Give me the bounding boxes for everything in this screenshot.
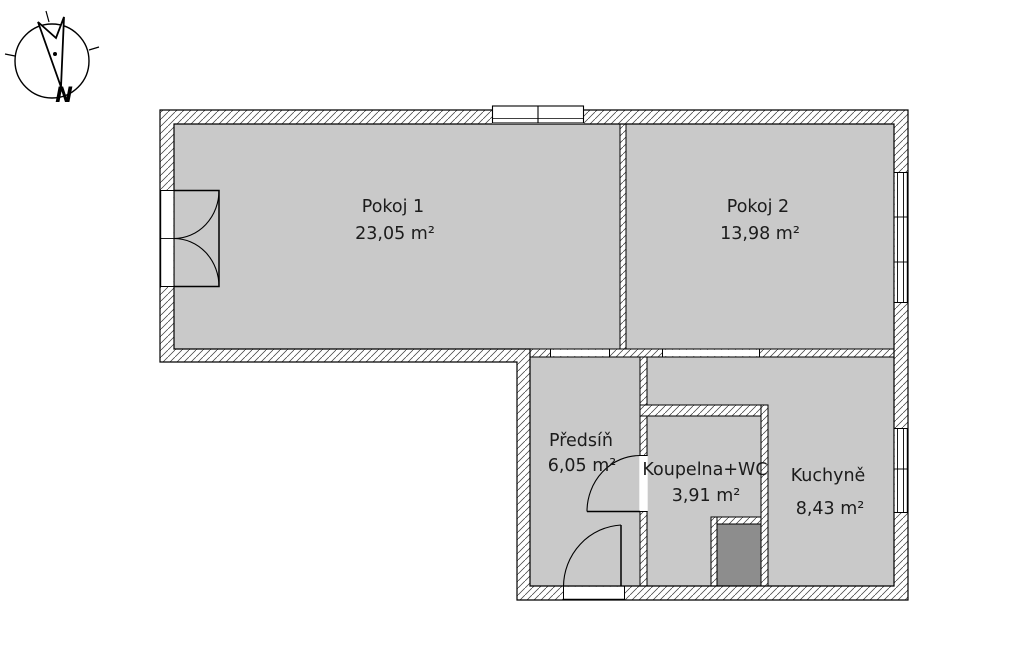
compass-north-label: N xyxy=(55,83,73,107)
window-pokoj2 xyxy=(894,172,908,303)
room-name-koupelna: Koupelna+WC xyxy=(642,460,767,480)
room-name-pokoj1: Pokoj 1 xyxy=(362,197,424,217)
window-top xyxy=(492,106,584,125)
floor-plan-page: N xyxy=(0,0,1024,665)
wall-shaft-top xyxy=(711,517,761,524)
room-area-koupelna: 3,91 m² xyxy=(672,486,741,506)
compass-needle-icon xyxy=(38,17,64,87)
opening-kitchen xyxy=(663,349,760,358)
compass-rose: N xyxy=(5,11,99,107)
wall-pokoj-divider xyxy=(620,124,626,349)
installation-shaft xyxy=(717,524,761,586)
wall-bathroom-top xyxy=(640,405,768,416)
floor-plan-drawing: N xyxy=(0,0,1024,665)
room-name-kuchyne: Kuchyně xyxy=(791,466,866,486)
room-area-predsin: 6,05 m² xyxy=(548,456,617,476)
opening-pokoj1 xyxy=(551,349,610,358)
wall-shaft-left xyxy=(711,517,717,586)
room-name-pokoj2: Pokoj 2 xyxy=(727,197,789,217)
room-area-pokoj2: 13,98 m² xyxy=(720,224,800,244)
room-area-kuchyne: 8,43 m² xyxy=(796,499,865,519)
room-area-pokoj1: 23,05 m² xyxy=(355,224,435,244)
wall-bathroom-right xyxy=(761,405,768,586)
compass-center-dot xyxy=(53,52,57,56)
window-kitchen xyxy=(894,428,908,513)
room-name-predsin: Předsíň xyxy=(549,431,613,451)
